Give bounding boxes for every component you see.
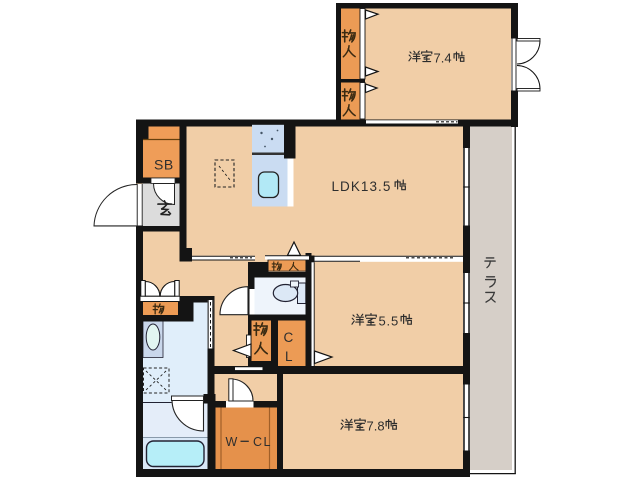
svg-text:7.8: 7.8 — [367, 419, 385, 434]
svg-text:CL: CL — [253, 435, 272, 449]
svg-text:7.4: 7.4 — [434, 51, 452, 66]
svg-text:LDK13.5: LDK13.5 — [332, 179, 392, 194]
svg-text:C: C — [284, 330, 294, 345]
svg-text:5.5: 5.5 — [379, 314, 399, 329]
svg-text:SB: SB — [154, 157, 174, 173]
svg-text:W: W — [226, 435, 238, 449]
svg-text:L: L — [285, 349, 293, 364]
